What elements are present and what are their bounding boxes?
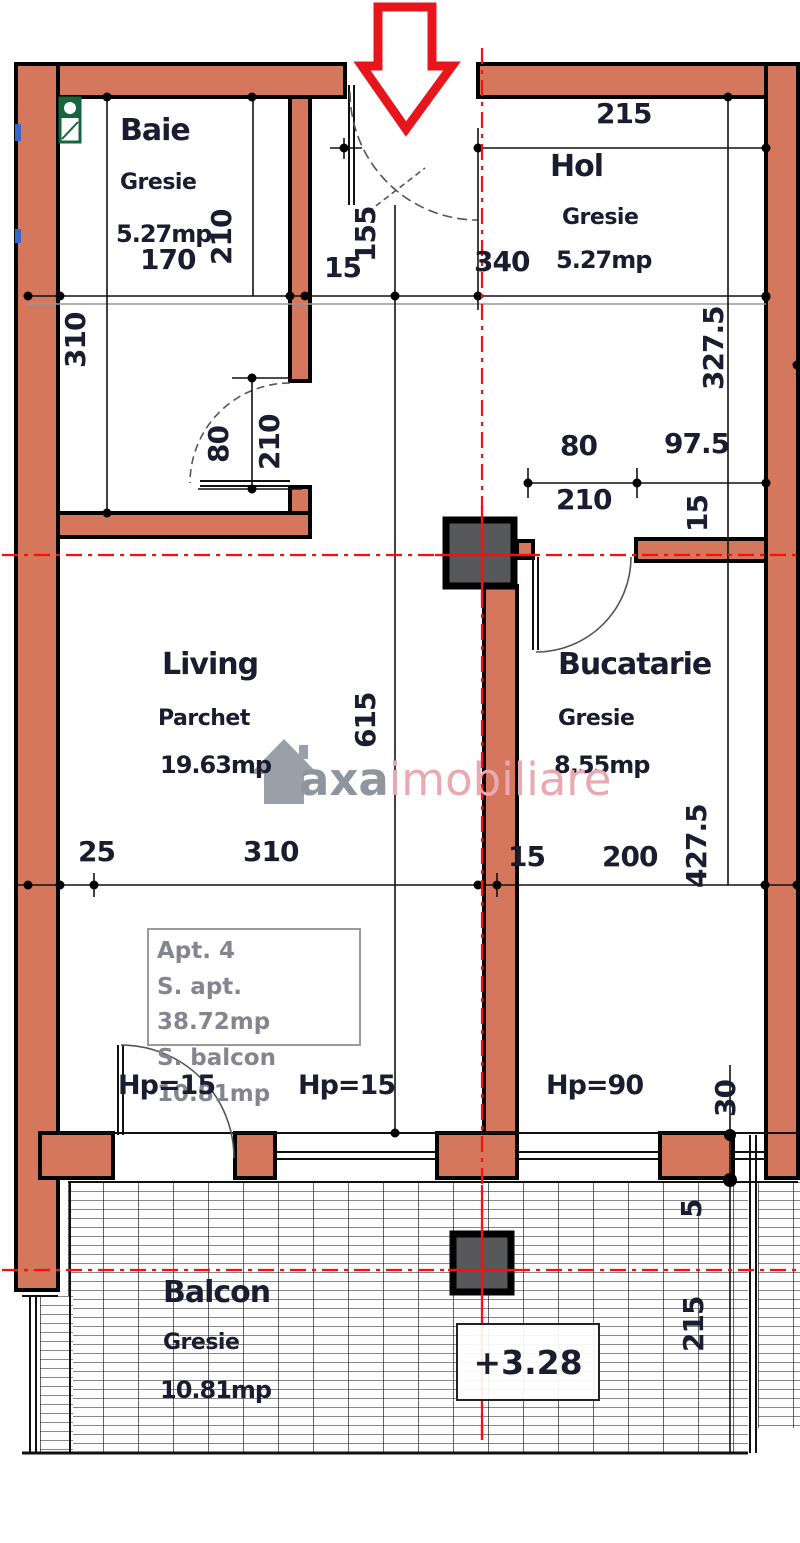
dim-215-balcony: 215 [680, 1297, 708, 1352]
dim-5: 5 [678, 1200, 706, 1218]
dim-200: 200 [602, 843, 657, 871]
room-label-baie: Baie [120, 116, 190, 146]
room-label-bucatarie: Bucatarie [558, 650, 711, 680]
dim-80-hol: 80 [560, 432, 597, 460]
dim-215-hol: 215 [596, 100, 651, 128]
room-label-living: Living [162, 650, 258, 680]
dim-hp15-b: Hp=15 [298, 1072, 395, 1099]
room-floor-balcon: Gresie [163, 1332, 239, 1354]
room-floor-bucatarie: Gresie [558, 708, 634, 730]
wall-top-left [16, 64, 345, 97]
info-box: Apt. 4 S. apt. 38.72mp S. balcon 10.81mp [147, 928, 361, 1046]
floor-plan: Baie Gresie 5.27mp 170 210 310 155 15 34… [0, 0, 800, 1543]
dim-hp90: Hp=90 [546, 1072, 643, 1099]
wall-baie-divider [290, 97, 310, 381]
dim-210-baie: 210 [208, 210, 236, 265]
room-floor-hol: Gresie [562, 207, 638, 229]
dim-30: 30 [712, 1080, 740, 1117]
room-label-hol: Hol [550, 152, 603, 182]
info-box-s-apt: S. apt. 38.72mp [157, 970, 359, 1041]
dim-327-5: 327.5 [700, 306, 728, 390]
dim-210-baie-door: 210 [256, 415, 284, 470]
dim-15-hol: 15 [684, 495, 712, 532]
dim-97-5: 97.5 [664, 430, 729, 458]
bathroom-fixture-icon [60, 98, 80, 142]
entrance-arrow-icon [362, 7, 452, 129]
watermark-brand-axa: axa [299, 753, 389, 806]
wall-right [766, 64, 798, 1178]
dim-hp15-a: Hp=15 [118, 1072, 215, 1099]
elevation-value: +3.28 [473, 1343, 582, 1382]
wall-bottom-pier1 [235, 1133, 275, 1178]
dim-210-hol: 210 [556, 486, 611, 514]
dim-25: 25 [78, 838, 115, 866]
room-area-living: 19.63mp [160, 753, 271, 777]
axis-lines [2, 48, 798, 1445]
wall-bottom-pier3 [660, 1133, 733, 1178]
dim-310-living: 310 [243, 838, 298, 866]
dim-15-bottom: 15 [508, 843, 545, 871]
elevation-marker: +3.28 [456, 1323, 600, 1401]
watermark-brand-imobiliare: imobiliare [389, 753, 612, 806]
room-label-balcon: Balcon [163, 1278, 270, 1308]
wall-top-right [478, 64, 798, 97]
wall-baie-stub [290, 487, 310, 513]
room-area-balcon: 10.81mp [160, 1378, 271, 1402]
dim-340: 340 [474, 248, 529, 276]
room-floor-baie: Gresie [120, 172, 196, 194]
watermark-brand: axaimobiliare [299, 753, 611, 806]
wall-left [16, 64, 58, 1290]
wall-baie-bottom [58, 513, 310, 537]
dim-170: 170 [140, 246, 195, 274]
pillar-main [446, 520, 514, 586]
wall-kitchen-top [636, 539, 766, 561]
wall-bottom-pier2 [437, 1133, 517, 1178]
dim-15-entry: 15 [324, 254, 361, 282]
dim-80-baie-door: 80 [205, 426, 233, 463]
door-arc-kitchen [536, 557, 631, 652]
dim-427-5: 427.5 [683, 804, 711, 888]
dim-615: 615 [352, 693, 380, 748]
info-box-apt: Apt. 4 [157, 934, 359, 970]
dim-310-baie: 310 [62, 313, 90, 368]
wall-bottom-corner-left [40, 1133, 113, 1178]
room-floor-living: Parchet [158, 708, 250, 730]
room-area-hol: 5.27mp [556, 248, 651, 272]
